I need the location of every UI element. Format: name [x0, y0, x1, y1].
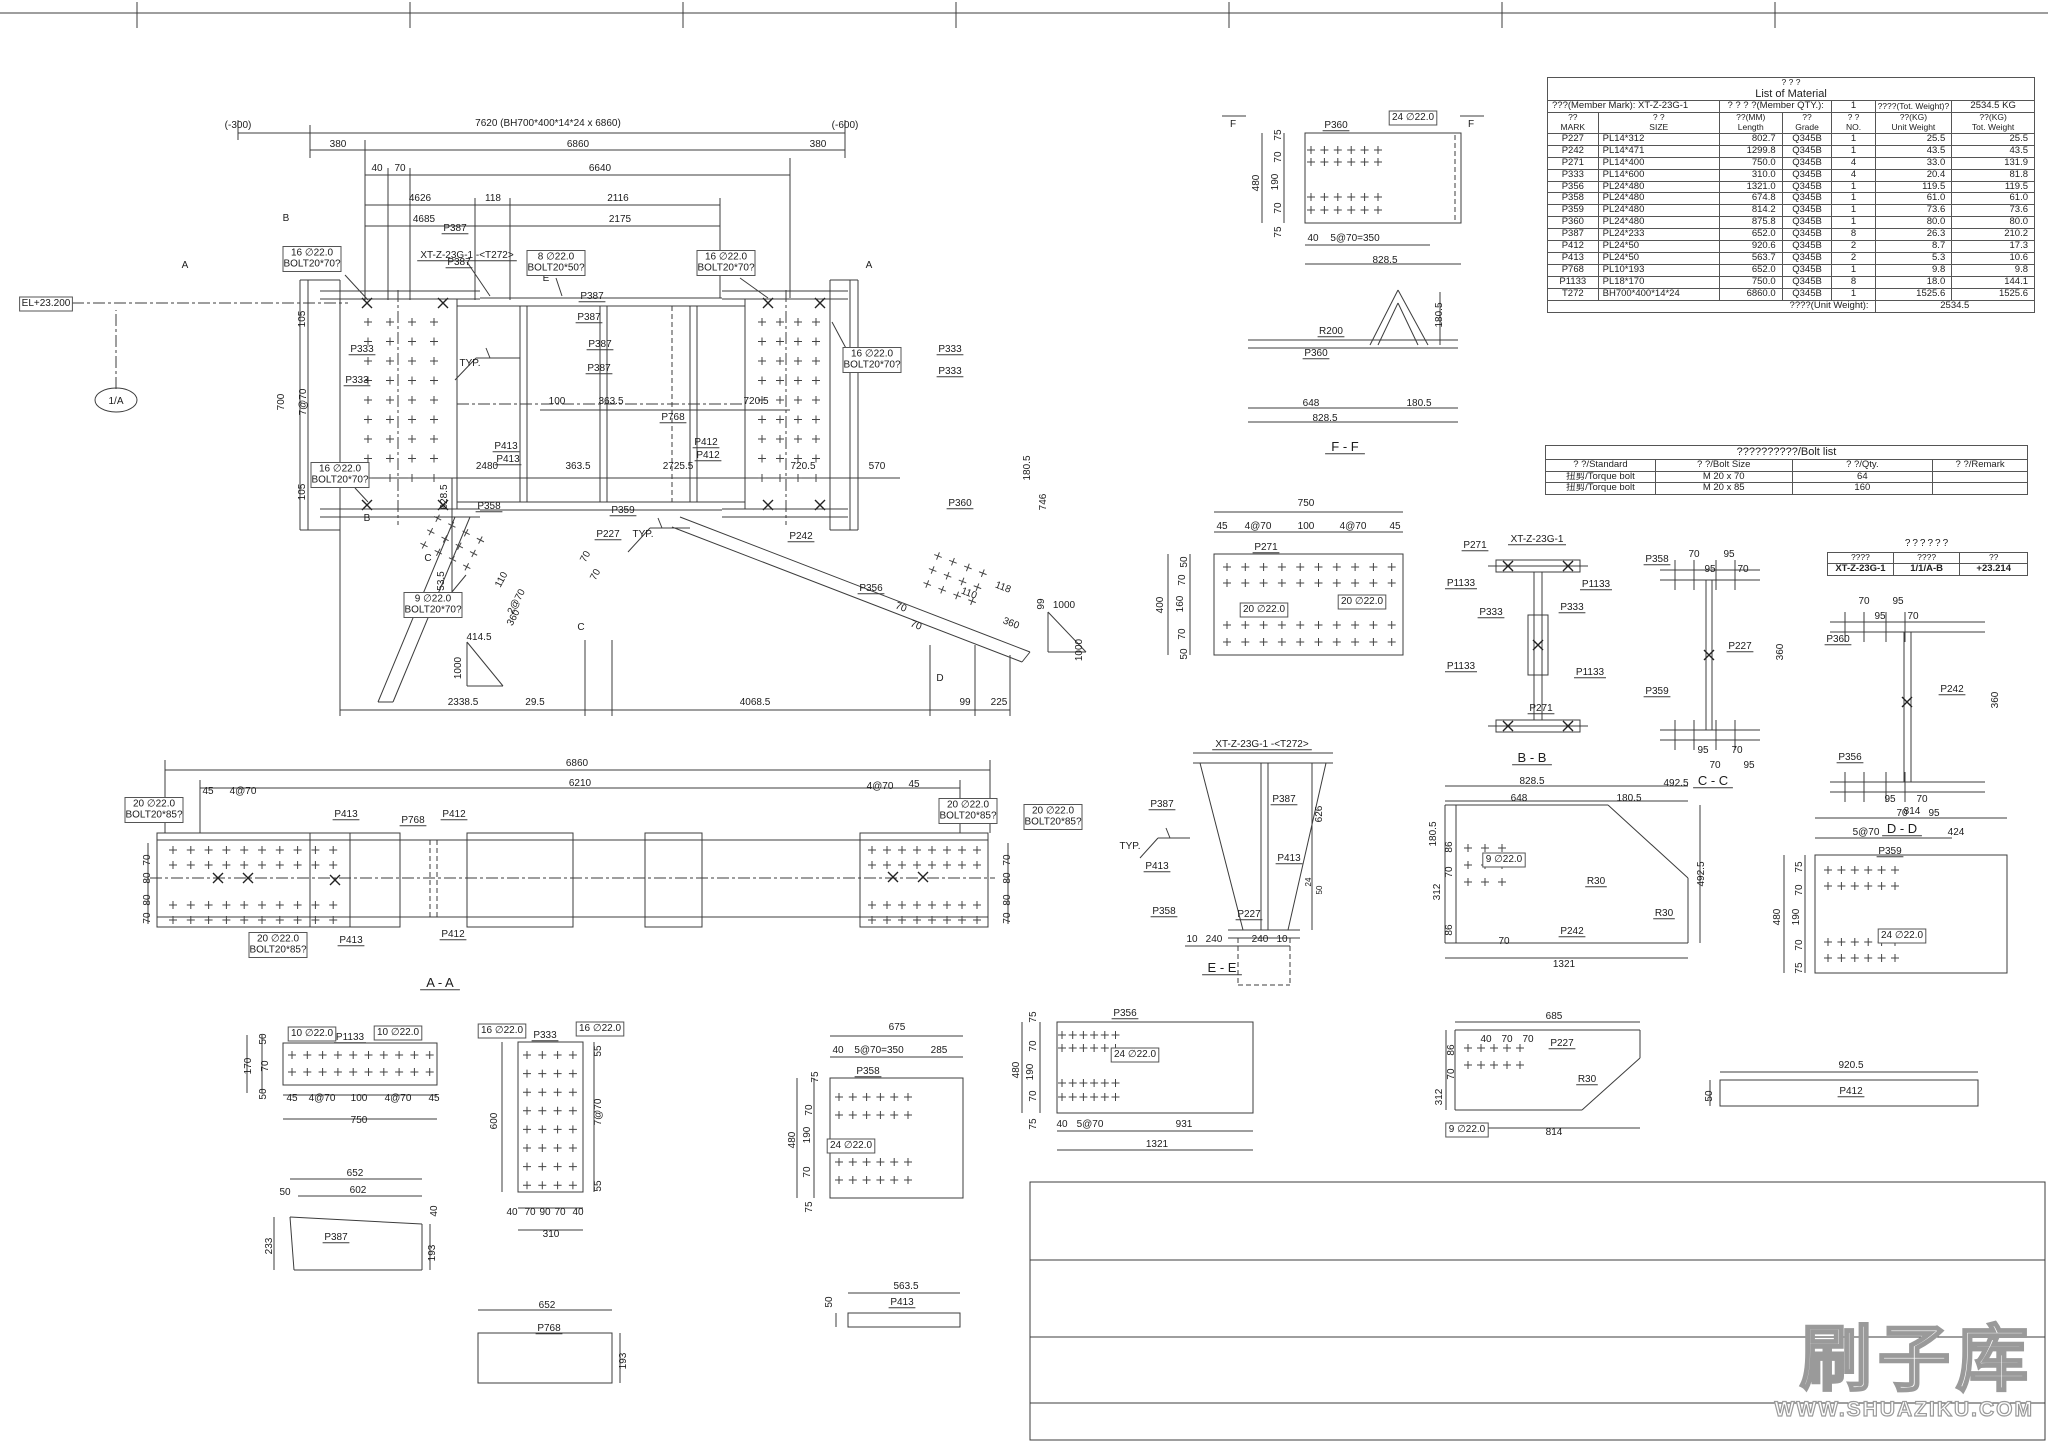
svg-text:B - B: B - B — [1518, 750, 1547, 765]
dimension-text: 70 — [1709, 760, 1721, 771]
dimension-text: 312 — [1432, 883, 1443, 900]
material-row: P768PL10*193652.0Q345B19.89.8 — [1548, 265, 2035, 277]
dimension-text: 2725.5 — [663, 461, 694, 472]
dimension-text: 75 — [1028, 1118, 1039, 1130]
dimension-text: 180.5 — [1428, 821, 1439, 846]
svg-text:1321: 1321 — [1553, 959, 1576, 970]
svg-text:50: 50 — [258, 1088, 269, 1100]
dimension-text: 70 — [909, 619, 924, 633]
part-label: P413 — [338, 935, 365, 946]
svg-text:B: B — [283, 213, 290, 224]
svg-text:20 ∅22.0: 20 ∅22.0 — [1341, 596, 1384, 607]
dimension-text: 70 — [1522, 1034, 1534, 1045]
part-label: P227 — [595, 529, 622, 540]
dimension-text: 4068.5 — [740, 697, 771, 708]
svg-text:70: 70 — [1794, 939, 1805, 951]
material-row: P359PL24*480814.2Q345B173.673.6 — [1548, 205, 2035, 217]
svg-text:750: 750 — [1298, 498, 1315, 509]
part-label: P387 — [446, 257, 473, 268]
dimension-text: 2175 — [609, 214, 632, 225]
dimension-text: 70 — [142, 912, 153, 924]
material-col-header: ? ?NO. — [1832, 113, 1875, 134]
svg-text:180.5: 180.5 — [1428, 821, 1439, 846]
svg-text:480: 480 — [787, 1131, 798, 1148]
material-row: P360PL24*480875.8Q345B180.080.0 — [1548, 217, 2035, 229]
svg-text:80: 80 — [142, 872, 153, 884]
bolt-callout: 20 ∅22.0BOLT20*85? — [125, 798, 183, 823]
elevation-tag: EL+23.200 — [20, 297, 73, 311]
svg-text:TYP.: TYP. — [1120, 841, 1141, 852]
svg-text:P360: P360 — [948, 498, 972, 509]
svg-text:P227: P227 — [1550, 1038, 1574, 1049]
dimension-text: 70 — [1002, 912, 1013, 924]
member-tag: XT-Z-23G-1 -<T272> — [1212, 739, 1312, 750]
svg-text:10: 10 — [1186, 934, 1198, 945]
dimension-text: 45 — [202, 786, 214, 797]
material-col-header: ??Grade — [1782, 113, 1832, 134]
dimension-text: 652 — [347, 1168, 364, 1179]
dimension-text: 70 — [1916, 794, 1928, 805]
material-row: P333PL14*600310.0Q345B420.481.8 — [1548, 169, 2035, 181]
svg-text:9 ∅22.0: 9 ∅22.0 — [1486, 854, 1523, 865]
section-mark-f: F — [1230, 119, 1236, 130]
dimension-text: 492.5 — [1663, 778, 1688, 789]
dimension-text: 80 — [1002, 872, 1013, 884]
dimension-text: 70 — [894, 601, 909, 615]
svg-text:50: 50 — [1704, 1090, 1715, 1102]
dimension-text: 40 — [1480, 1034, 1492, 1045]
svg-text:105: 105 — [297, 310, 308, 327]
svg-text:P358: P358 — [1645, 554, 1669, 565]
svg-text:70: 70 — [578, 549, 593, 564]
part-label: P387 — [586, 363, 613, 374]
dimension-text: 4@70 — [867, 781, 894, 792]
bolt-callout: 24 ∅22.0 — [1878, 929, 1926, 943]
dimension-text: 240 — [1252, 934, 1269, 945]
svg-text:20 ∅22.0BOLT20*85?: 20 ∅22.0BOLT20*85? — [939, 800, 997, 822]
dimension-text: 6860 — [567, 139, 590, 150]
dimension-text: (-300) — [225, 120, 252, 131]
dimension-text: 40 — [506, 1207, 518, 1218]
svg-text:70: 70 — [802, 1166, 813, 1178]
svg-text:70: 70 — [260, 1060, 271, 1072]
dimension-text: 828.5 — [1312, 413, 1337, 424]
dimension-text: 931 — [1176, 1119, 1193, 1130]
svg-text:424: 424 — [1948, 827, 1965, 838]
dimension-text: 40 — [1056, 1119, 1068, 1130]
dimension-text: 285 — [931, 1045, 948, 1056]
bolt-callout: 10 ∅22.0 — [288, 1027, 336, 1041]
dimension-text: R30 — [1576, 1074, 1598, 1085]
svg-text:B: B — [364, 513, 371, 524]
svg-text:70: 70 — [894, 601, 909, 615]
part-label: P387 — [576, 312, 603, 323]
dimension-text: 190 — [802, 1126, 813, 1143]
dimension-text: 828.5 — [1519, 776, 1544, 787]
svg-text:P358: P358 — [856, 1066, 880, 1077]
svg-text:180.5: 180.5 — [1406, 398, 1431, 409]
svg-text:920.5: 920.5 — [1838, 1060, 1863, 1071]
part-label: P1133 — [334, 1032, 366, 1043]
dimension-text: 70 — [1028, 1040, 1039, 1052]
svg-text:P359: P359 — [611, 505, 635, 516]
svg-text:100: 100 — [549, 396, 566, 407]
dimension-text: 70 — [1501, 1034, 1513, 1045]
dimension-text: 70 — [1002, 854, 1013, 866]
svg-text:70: 70 — [1177, 628, 1188, 640]
svg-text:P1133: P1133 — [336, 1032, 365, 1043]
dimension-text: 70 — [1177, 628, 1188, 640]
svg-text:70: 70 — [1444, 866, 1455, 878]
part-label: P333 — [937, 344, 964, 355]
part-label: P359 — [1877, 846, 1904, 857]
svg-text:P333: P333 — [350, 344, 374, 355]
dimension-text: 100 — [1298, 521, 1315, 532]
svg-text:828.5: 828.5 — [1312, 413, 1337, 424]
dimension-text: 7620 (BH700*400*14*24 x 6860) — [475, 118, 621, 129]
svg-text:400: 400 — [1155, 596, 1166, 613]
material-row: P1133PL18*170750.0Q345B818.0144.1 — [1548, 276, 2035, 288]
dimension-text: 720.5 — [743, 396, 768, 407]
material-row: P412PL24*50920.6Q345B28.717.3 — [1548, 241, 2035, 253]
svg-text:P387: P387 — [1150, 799, 1174, 810]
svg-text:P413: P413 — [1145, 861, 1169, 872]
dimension-text: 70 — [1028, 1090, 1039, 1102]
svg-text:A - A: A - A — [426, 975, 454, 990]
part-label: P413 — [493, 441, 520, 452]
dimension-text: 363.5 — [598, 396, 623, 407]
svg-text:10 ∅22.0: 10 ∅22.0 — [291, 1028, 334, 1039]
svg-text:P412: P412 — [1839, 1086, 1863, 1097]
dimension-text: 1321 — [1146, 1139, 1169, 1150]
svg-text:380: 380 — [810, 139, 827, 150]
svg-text:P333: P333 — [1479, 607, 1503, 618]
bolt-callout: 16 ∅22.0BOLT20*70? — [843, 348, 901, 373]
svg-text:86: 86 — [1444, 841, 1455, 853]
dimension-text: 233 — [264, 1237, 275, 1254]
bolt-callout: 10 ∅22.0 — [374, 1026, 422, 1040]
bolt-callout: 24 ∅22.0 — [827, 1139, 875, 1153]
svg-text:40: 40 — [1056, 1119, 1068, 1130]
svg-text:492.5: 492.5 — [1696, 861, 1707, 886]
dimension-text: 75 — [1273, 226, 1284, 238]
part-label: P333 — [1559, 602, 1586, 613]
svg-text:160: 160 — [1175, 595, 1186, 612]
part-label: P360 — [1825, 634, 1852, 645]
dimension-text: 5@70 — [1853, 827, 1880, 838]
svg-text:118: 118 — [485, 193, 501, 204]
svg-text:180.5: 180.5 — [1616, 793, 1641, 804]
svg-text:50: 50 — [279, 1187, 291, 1198]
dimension-text: 45 — [286, 1093, 298, 1104]
part-label: P387 — [323, 1232, 350, 1243]
dimension-text: 95 — [1704, 564, 1716, 575]
svg-text:P387: P387 — [580, 291, 604, 302]
svg-text:70: 70 — [142, 854, 153, 866]
view-title: F - F — [1325, 439, 1365, 454]
svg-text:9 ∅22.0: 9 ∅22.0 — [1449, 1124, 1486, 1135]
svg-text:40: 40 — [371, 163, 383, 174]
svg-text:P242: P242 — [1940, 684, 1964, 695]
part-label: P271 — [1462, 540, 1489, 551]
dimension-text: 563.5 — [893, 1281, 918, 1292]
svg-text:55: 55 — [593, 1045, 604, 1057]
dimension-text: 80 — [1002, 894, 1013, 906]
part-label: P333 — [532, 1030, 559, 1041]
dimension-text: 193 — [618, 1352, 629, 1369]
svg-text:6210: 6210 — [569, 778, 592, 789]
dimension-text: 45 — [908, 779, 920, 790]
svg-text:XT-Z-23G-1: XT-Z-23G-1 — [1511, 534, 1564, 545]
svg-text:190: 190 — [1791, 908, 1802, 925]
part-label: P412 — [441, 809, 468, 820]
dimension-text: 45 — [1389, 521, 1401, 532]
dimension-text: 70 — [1273, 151, 1284, 163]
svg-text:95: 95 — [1743, 760, 1755, 771]
svg-text:492.5: 492.5 — [1663, 778, 1688, 789]
svg-text:310: 310 — [543, 1229, 560, 1240]
dimension-text: 70 — [578, 549, 593, 564]
svg-text:380: 380 — [330, 139, 347, 150]
svg-text:86: 86 — [1446, 1044, 1457, 1056]
svg-text:P1133: P1133 — [1447, 578, 1476, 589]
svg-text:P358: P358 — [1152, 906, 1176, 917]
dimension-text: 75 — [1794, 962, 1805, 974]
svg-text:75: 75 — [1028, 1118, 1039, 1130]
dimension-text: 53.5 — [436, 571, 447, 591]
svg-text:P242: P242 — [789, 531, 813, 542]
grid-bubble-label: 1/A — [108, 396, 123, 407]
dimension-text: 360 — [1775, 643, 1786, 660]
svg-text:45: 45 — [908, 779, 920, 790]
dimension-text: 55 — [593, 1180, 604, 1192]
material-col-header: ??(MM)Length — [1719, 113, 1782, 134]
svg-text:628.5: 628.5 — [439, 484, 450, 509]
svg-text:70: 70 — [1028, 1040, 1039, 1052]
svg-text:P333: P333 — [1560, 602, 1584, 613]
dimension-text: 160 — [1175, 595, 1186, 612]
dimension-text: 70 — [1858, 596, 1870, 607]
svg-text:R30: R30 — [1587, 876, 1606, 887]
dimension-text: 70 — [1794, 884, 1805, 896]
svg-text:40: 40 — [572, 1207, 584, 1218]
bolt-callout: 9 ∅22.0 — [1446, 1123, 1488, 1137]
svg-text:2116: 2116 — [607, 193, 629, 204]
material-col-header: ??MARK — [1548, 113, 1599, 134]
dimension-text: 628.5 — [439, 484, 450, 509]
dimension-text: 45 — [1216, 521, 1228, 532]
svg-text:70: 70 — [394, 163, 406, 174]
svg-text:360: 360 — [1990, 691, 2001, 708]
view-title: A - A — [420, 975, 460, 990]
bolt-callout: 9 ∅22.0BOLT20*70? — [404, 593, 462, 618]
svg-text:P333: P333 — [533, 1030, 557, 1041]
dimension-text: 720.5 — [790, 461, 815, 472]
dimension-text: 118 — [485, 193, 501, 204]
dimension-text: 70 — [1688, 549, 1700, 560]
svg-text:50: 50 — [1179, 556, 1190, 568]
dimension-text: 5@70=350 — [1330, 233, 1380, 244]
dimension-text: 70 — [1731, 745, 1743, 756]
dimension-text: 70 — [142, 854, 153, 866]
svg-text:95: 95 — [1723, 549, 1735, 560]
svg-text:70: 70 — [1737, 564, 1749, 575]
dimension-text: 95 — [1743, 760, 1755, 771]
svg-text:240: 240 — [1252, 934, 1269, 945]
bolt-row: 扭剪/Torque boltM 20 x 85160 — [1546, 483, 2028, 495]
dimension-text: 10 — [1186, 934, 1198, 945]
bolt-callout: 24 ∅22.0 — [1389, 111, 1437, 125]
svg-text:648: 648 — [1303, 398, 1320, 409]
dimension-text: 360 — [1990, 691, 2001, 708]
svg-text:P768: P768 — [661, 412, 685, 423]
svg-text:95: 95 — [1874, 611, 1886, 622]
svg-text:P333: P333 — [938, 366, 962, 377]
svg-text:70: 70 — [524, 1207, 536, 1218]
dimension-text: 70 — [1907, 611, 1919, 622]
svg-text:P360: P360 — [1826, 634, 1850, 645]
dimension-text: 50 — [258, 1088, 269, 1100]
svg-text:P412: P412 — [696, 450, 720, 461]
svg-text:414.5: 414.5 — [466, 632, 491, 643]
dimension-text: 10 — [1276, 934, 1288, 945]
svg-text:P359: P359 — [1878, 846, 1902, 857]
dimension-text: 750 — [351, 1115, 368, 1126]
part-label: P227 — [1236, 909, 1263, 920]
material-table-title: ? ? ?List of Material — [1548, 78, 2035, 101]
section-mark-f: F — [1468, 119, 1474, 130]
svg-text:40: 40 — [506, 1207, 518, 1218]
part-label: P413 — [889, 1297, 916, 1308]
svg-text:480: 480 — [1772, 908, 1783, 925]
dimension-text: 363.5 — [565, 461, 590, 472]
bolt-callout: 16 ∅22.0BOLT20*70? — [697, 251, 755, 276]
material-row: P356PL24*4801321.0Q345B1119.5119.5 — [1548, 181, 2035, 193]
dimension-text: TYP. — [460, 358, 481, 369]
dimension-text: 75 — [1273, 129, 1284, 141]
svg-text:360: 360 — [1001, 616, 1021, 632]
dimension-text: 86 — [1446, 1044, 1457, 1056]
svg-text:P412: P412 — [442, 809, 466, 820]
svg-text:652: 652 — [347, 1168, 364, 1179]
svg-text:95: 95 — [1892, 596, 1904, 607]
svg-text:193: 193 — [427, 1244, 438, 1261]
svg-text:828.5: 828.5 — [1519, 776, 1544, 787]
svg-text:P387: P387 — [1272, 794, 1296, 805]
section-mark-b: B — [364, 513, 371, 524]
svg-text:110: 110 — [493, 570, 510, 590]
part-label: P1133 — [1574, 667, 1606, 678]
dimension-text: 4@70 — [1245, 521, 1272, 532]
svg-text:P271: P271 — [1529, 703, 1553, 714]
svg-text:20 ∅22.0BOLT20*85?: 20 ∅22.0BOLT20*85? — [125, 799, 183, 821]
part-label: P242 — [788, 531, 815, 542]
svg-text:C: C — [424, 553, 431, 564]
svg-text:24: 24 — [1304, 877, 1313, 886]
dimension-text: 70 — [1177, 574, 1188, 586]
dimension-text: 746 — [1038, 493, 1049, 510]
dimension-text: 70 — [1273, 202, 1284, 214]
dimension-text: 312 — [1434, 1088, 1445, 1105]
svg-text:240: 240 — [1206, 934, 1223, 945]
dimension-text: 70 — [554, 1207, 566, 1218]
dimension-text: 4@70 — [309, 1093, 336, 1104]
dimension-text: 40 — [572, 1207, 584, 1218]
svg-text:5@70: 5@70 — [1077, 1119, 1104, 1130]
dimension-text: 2116 — [607, 193, 629, 204]
svg-text:4@70: 4@70 — [867, 781, 894, 792]
part-label: P768 — [400, 815, 427, 826]
bolt-callout: 16 ∅22.0 — [478, 1024, 526, 1038]
bolt-callout: 20 ∅22.0 — [1240, 603, 1288, 617]
part-label: P358 — [1644, 554, 1671, 565]
svg-text:600: 600 — [489, 1112, 500, 1129]
part-label: P387 — [587, 339, 614, 350]
dimension-text: 80 — [142, 894, 153, 906]
svg-text:4685: 4685 — [413, 214, 436, 225]
part-label: P412 — [440, 929, 467, 940]
svg-text:100: 100 — [1298, 521, 1315, 532]
svg-text:45: 45 — [286, 1093, 298, 1104]
svg-text:P768: P768 — [537, 1323, 561, 1334]
svg-text:70: 70 — [588, 567, 603, 582]
svg-text:P1133: P1133 — [1582, 579, 1611, 590]
bolt-callout: 9 ∅22.0 — [1483, 853, 1525, 867]
svg-text:746: 746 — [1038, 493, 1049, 510]
part-label: P1133 — [1445, 661, 1477, 672]
dimension-text: 50 — [1315, 885, 1324, 894]
svg-text:6860: 6860 — [567, 139, 590, 150]
svg-text:P768: P768 — [401, 815, 425, 826]
svg-text:F - F: F - F — [1331, 439, 1358, 454]
svg-text:233: 233 — [264, 1237, 275, 1254]
dimension-text: 648 — [1511, 793, 1528, 804]
svg-text:45: 45 — [202, 786, 214, 797]
svg-text:P356: P356 — [859, 583, 883, 594]
svg-text:P412: P412 — [441, 929, 465, 940]
svg-text:24 ∅22.0: 24 ∅22.0 — [1114, 1049, 1157, 1060]
svg-text:75: 75 — [1794, 962, 1805, 974]
dimension-text: 50 — [1179, 556, 1190, 568]
svg-text:4068.5: 4068.5 — [740, 697, 771, 708]
dimension-text: 70 — [588, 567, 603, 582]
dimension-text: 310 — [543, 1229, 560, 1240]
svg-text:363.5: 363.5 — [565, 461, 590, 472]
dimension-text: 75 — [810, 1071, 821, 1083]
svg-text:F: F — [1230, 119, 1236, 130]
svg-text:20 ∅22.0: 20 ∅22.0 — [1243, 604, 1286, 615]
dimension-text: 1000 — [453, 656, 464, 679]
material-col-header: ? ?SIZE — [1598, 113, 1719, 134]
svg-text:685: 685 — [1546, 1011, 1563, 1022]
svg-text:180.5: 180.5 — [1022, 455, 1033, 480]
svg-text:720.5: 720.5 — [743, 396, 768, 407]
dimension-text: 180.5 — [1616, 793, 1641, 804]
svg-text:16 ∅22.0BOLT20*70?: 16 ∅22.0BOLT20*70? — [283, 248, 341, 270]
view-title: D - D — [1882, 821, 1922, 836]
svg-text:1000: 1000 — [1053, 600, 1076, 611]
svg-text:648: 648 — [1511, 793, 1528, 804]
svg-text:70: 70 — [1501, 1034, 1513, 1045]
svg-text:R30: R30 — [1655, 908, 1674, 919]
dimension-text: 70 — [1737, 564, 1749, 575]
svg-text:105: 105 — [297, 483, 308, 500]
svg-text:75: 75 — [1794, 861, 1805, 873]
svg-text:10 ∅22.0: 10 ∅22.0 — [377, 1027, 420, 1038]
part-label: P1133 — [1445, 578, 1477, 589]
part-label: P387 — [1271, 794, 1298, 805]
svg-text:652: 652 — [539, 1300, 556, 1311]
